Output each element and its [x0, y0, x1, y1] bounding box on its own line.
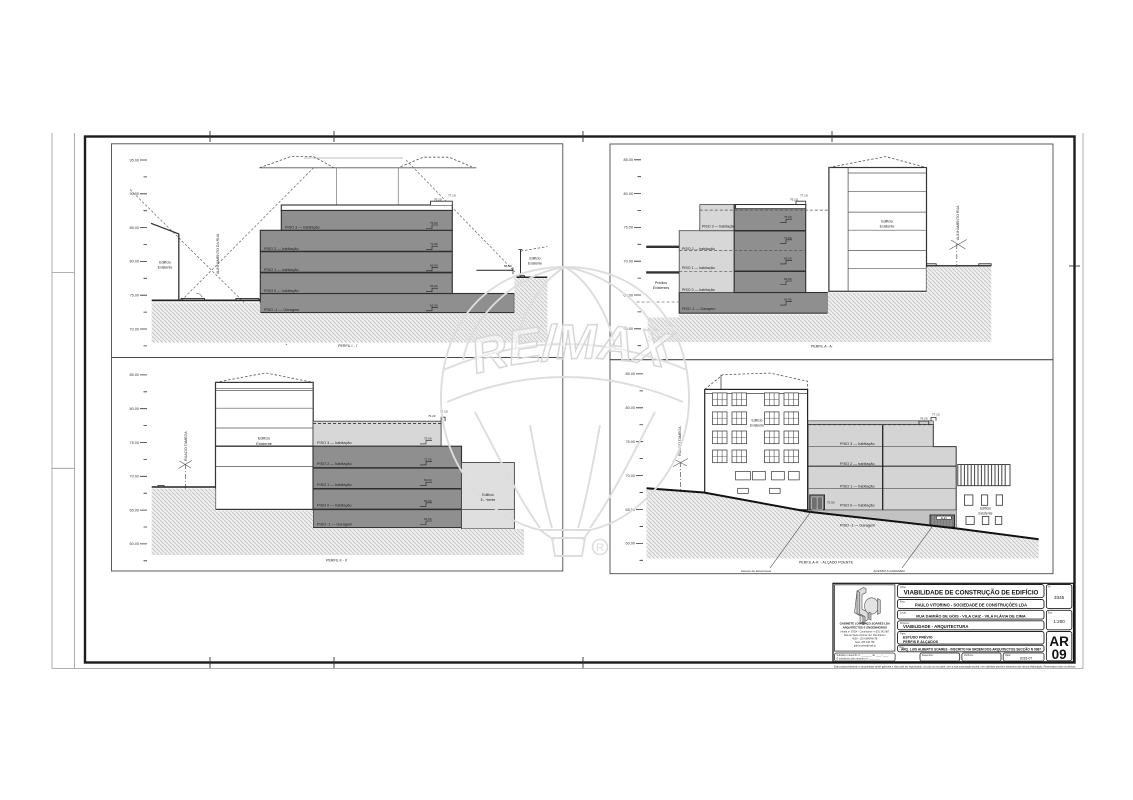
svg-text:76.20: 76.20 [434, 198, 442, 202]
svg-text:ARQ. LUIS ALBERTO SOARES - INS: ARQ. LUIS ALBERTO SOARES - INSCRITO NA O… [901, 646, 1041, 651]
svg-text:77.10: 77.10 [448, 194, 456, 198]
svg-text:Edificio: Edificio [980, 507, 991, 511]
svg-text:Local:: Local: [900, 611, 907, 614]
svg-text:Desenhou:: Desenhou: [922, 654, 934, 657]
svg-text:Nº:: Nº: [1048, 585, 1052, 589]
svg-text:60.00: 60.00 [129, 542, 139, 546]
svg-text:Existente: Existente [528, 262, 542, 266]
svg-text:PERFIL II - II´: PERFIL II - II´ [326, 559, 348, 563]
svg-text:70.00: 70.00 [625, 474, 635, 478]
svg-text:ESTUDO PRÉVIO: ESTUDO PRÉVIO [903, 634, 933, 639]
svg-text:69.90: 69.90 [424, 478, 432, 482]
svg-text:63.90: 63.90 [430, 303, 438, 307]
svg-text:95.00: 95.00 [129, 158, 139, 162]
svg-text:80.00: 80.00 [625, 406, 635, 410]
svg-text:Obra:: Obra: [900, 586, 906, 589]
svg-text:69.90: 69.90 [430, 263, 438, 267]
svg-text:66.90: 66.90 [424, 499, 432, 503]
svg-text:80.00: 80.00 [623, 192, 633, 196]
svg-text:ALINHAMENTO RUA: ALINHAMENTO RUA [956, 205, 960, 240]
svg-text:Existente: Existente [750, 424, 764, 428]
svg-text:Edificio: Edificio [881, 220, 893, 224]
svg-text:PISO 0 — habitação: PISO 0 — habitação [682, 288, 715, 292]
svg-text:ACESSO A GARAGEM: ACESSO A GARAGEM [873, 569, 905, 573]
svg-text:PISO 3 — habitação: PISO 3 — habitação [840, 442, 875, 446]
svg-text:75.90: 75.90 [784, 215, 792, 219]
svg-text:PISO 3 — habitação: PISO 3 — habitação [702, 225, 735, 229]
svg-text:VIABILIDADE - ARQUITECTURA: VIABILIDADE - ARQUITECTURA [903, 624, 969, 629]
svg-text:PAULO VITORINO - SOCIEDADE DE: PAULO VITORINO - SOCIEDADE DE CONSTRUÇÕE… [915, 603, 1027, 608]
svg-text:Edificio: Edificio [159, 261, 171, 265]
svg-text:Edificio: Edificio [752, 419, 763, 423]
svg-text:É substituído pelo desenho nº: É substituído pelo desenho nº ________ [837, 657, 881, 661]
svg-text:63.90: 63.90 [784, 298, 792, 302]
svg-text:75.00: 75.00 [625, 440, 635, 444]
svg-text:PISO 3 — habitação: PISO 3 — habitação [317, 441, 352, 445]
svg-text:85.00: 85.00 [129, 226, 139, 230]
svg-text:75.90: 75.90 [430, 221, 438, 225]
svg-text:Esc:: Esc: [1048, 611, 1053, 614]
svg-text:80.00: 80.00 [129, 407, 139, 411]
svg-text:75.00: 75.00 [623, 226, 633, 230]
svg-text:70.00: 70.00 [623, 260, 633, 264]
svg-text:VIABILIDADE DE CONSTRUÇÃO DE E: VIABILIDADE DE CONSTRUÇÃO DE EDIFÍCIO [904, 589, 1039, 597]
svg-text:ALINHAMENTO DA RUA: ALINHAMENTO DA RUA [216, 233, 220, 274]
svg-text:Data:: Data: [1005, 654, 1011, 657]
svg-text:PISO 3 — habitação: PISO 3 — habitação [285, 226, 320, 230]
svg-text:Existentes: Existentes [653, 286, 670, 290]
svg-text:Req:: Req: [900, 601, 905, 604]
svg-text:PISO 2 — habitação: PISO 2 — habitação [264, 247, 299, 251]
svg-text:72.90: 72.90 [424, 457, 432, 461]
svg-text:RUA DO TAMEGA: RUA DO TAMEGA [184, 431, 188, 461]
svg-text:80.00: 80.00 [129, 260, 139, 264]
svg-text:1:200: 1:200 [1053, 619, 1065, 624]
svg-text:70.00: 70.00 [129, 475, 139, 479]
svg-text:Edificio: Edificio [482, 493, 494, 497]
svg-text:Existente: Existente [979, 512, 993, 516]
svg-text:66.60: 66.60 [504, 264, 512, 268]
svg-text:PISO 1 — habitação: PISO 1 — habitação [264, 268, 299, 272]
svg-text:Edificio: Edificio [258, 437, 270, 441]
svg-text:76.20: 76.20 [920, 417, 928, 421]
svg-text:Existente: Existente [880, 225, 895, 229]
svg-text:PISO 2 — habitação: PISO 2 — habitação [317, 462, 352, 466]
svg-text:Verificou:: Verificou: [964, 654, 974, 657]
svg-text:ELEV: ELEV [941, 517, 948, 520]
svg-text:09: 09 [1052, 647, 1067, 662]
svg-text:2015-07: 2015-07 [1020, 657, 1033, 661]
svg-text:63.90: 63.90 [424, 517, 432, 521]
svg-text:gab.lsoares@mail.pt: gab.lsoares@mail.pt [854, 644, 876, 647]
svg-text:RUA DAMIÃO DE GÓIS - VILA CAIZ: RUA DAMIÃO DE GÓIS - VILA CAIZ - VILA FL… [916, 613, 1026, 618]
svg-text:Alvará nº 37654 - Contribuinte: Alvará nº 37654 - Contribuinte nº 501 34… [840, 629, 889, 633]
svg-text:3345: 3345 [1054, 595, 1065, 600]
svg-text:PISO 1 — habitação: PISO 1 — habitação [682, 266, 715, 270]
svg-text:69.90: 69.90 [784, 256, 792, 260]
svg-text:PERFIL A-A´ - ALÇADO POENTE: PERFIL A-A´ - ALÇADO POENTE [799, 561, 854, 565]
svg-text:60.00: 60.00 [625, 542, 635, 546]
svg-text:75.90: 75.90 [424, 436, 432, 440]
svg-text:75.00: 75.00 [129, 441, 139, 445]
svg-text:PISO 1 — habitação: PISO 1 — habitação [840, 484, 875, 488]
svg-text:Existente: Existente [158, 266, 173, 270]
svg-text:66.90: 66.90 [430, 284, 438, 288]
svg-text:76.20: 76.20 [428, 414, 436, 418]
svg-text:70.00: 70.00 [129, 327, 139, 331]
svg-text:PERFIS E ALÇADOS: PERFIS E ALÇADOS [903, 640, 939, 644]
svg-text:PISO -1 — Garagem: PISO -1 — Garagem [840, 523, 875, 527]
svg-text:PISO 0 — habitação: PISO 0 — habitação [317, 504, 352, 508]
svg-text:75.00: 75.00 [129, 294, 139, 298]
svg-text:R: R [596, 542, 604, 554]
svg-text:Prédios: Prédios [655, 281, 667, 285]
svg-text:85.00: 85.00 [623, 158, 633, 162]
svg-text:PISO 2 — habitação: PISO 2 — habitação [840, 462, 875, 466]
svg-text:Acesso de automóveis: Acesso de automóveis [741, 569, 772, 573]
svg-text:77.10: 77.10 [932, 413, 940, 417]
svg-text:PISO -1 — Garagem: PISO -1 — Garagem [317, 522, 352, 526]
svg-text:Existente: Existente [256, 442, 272, 446]
svg-text:65.00: 65.00 [129, 508, 139, 512]
svg-text:PISO 1 — habitação: PISO 1 — habitação [317, 483, 352, 487]
svg-text:Substitui o desenho nº _______: Substitui o desenho nº ________ de ____ … [837, 653, 889, 657]
svg-text:72.90: 72.90 [827, 501, 835, 505]
svg-text:PERFIL I - I´: PERFIL I - I´ [338, 344, 358, 348]
svg-text:ARQUITECTOS E ENGENHEIROS: ARQUITECTOS E ENGENHEIROS [843, 625, 888, 629]
svg-text:72.90: 72.90 [784, 236, 792, 240]
svg-text:Edificio: Edificio [530, 257, 541, 261]
svg-text:66.90: 66.90 [784, 277, 792, 281]
svg-text:Este projecto/desenho é propri: Este projecto/desenho é propriedade dest… [834, 665, 1076, 669]
svg-text:PISO -1 — Garagem: PISO -1 — Garagem [264, 308, 299, 312]
svg-text:85.00: 85.00 [129, 373, 139, 377]
svg-text:77.10: 77.10 [800, 194, 808, 198]
svg-text:PISO 2 — habitação: PISO 2 — habitação [682, 247, 715, 251]
svg-text:PISO 0 — habitação: PISO 0 — habitação [840, 503, 875, 507]
svg-text:72.90: 72.90 [430, 242, 438, 246]
svg-text:PISO -1 — Garagem: PISO -1 — Garagem [682, 307, 715, 311]
svg-text:PERFIL A - A´: PERFIL A - A´ [811, 345, 833, 349]
svg-text:PISO 0 — habitação: PISO 0 — habitação [264, 289, 299, 293]
